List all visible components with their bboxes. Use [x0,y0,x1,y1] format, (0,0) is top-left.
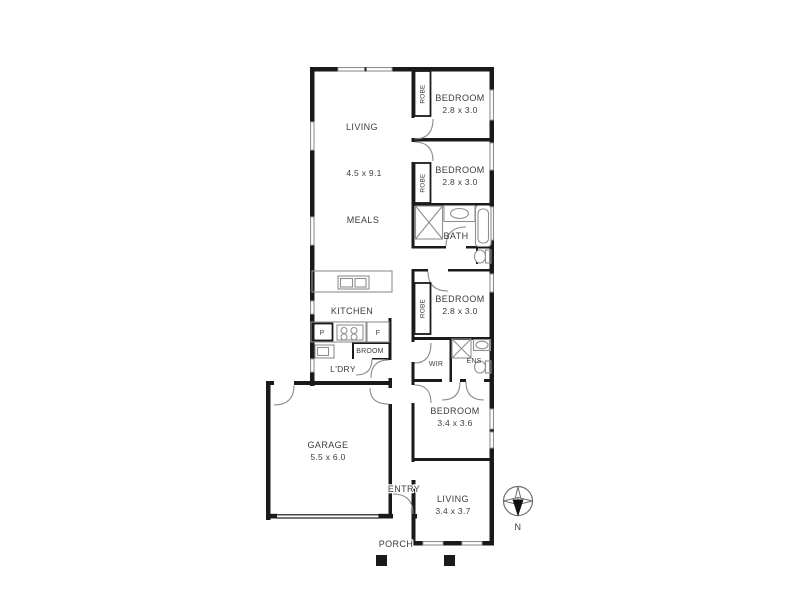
compass-rose: N [504,487,533,533]
laundry-fixtures [315,345,334,358]
room-label-garage: GARAGE [308,440,349,450]
room-label-broom: BROOM [356,348,383,355]
room-dims-bedroom-2: 2.8 x 3.0 [442,177,477,187]
robe-closets [415,71,431,334]
room-labels: LIVING 4.5 x 9.1 MEALS KITCHEN BEDROOM 2… [308,84,485,549]
room-label-porch: PORCH [379,539,414,549]
compass-north-needle [513,500,524,517]
room-dims-garage: 5.5 x 6.0 [310,452,345,462]
compass-north-label: N [515,522,522,532]
room-label-bedroom-2: BEDROOM [435,165,484,175]
room-dims-bedroom-4: 3.4 x 3.6 [437,418,472,428]
room-label-wir: WIR [429,361,443,368]
room-label-meals: MEALS [347,215,380,225]
label-fridge: F [376,330,380,337]
room-label-bath: BATH [444,231,469,241]
room-dims-bedroom-3: 2.8 x 3.0 [442,306,477,316]
room-label-ens: ENS [467,358,482,365]
floor-plan-page: LIVING 4.5 x 9.1 MEALS KITCHEN BEDROOM 2… [0,0,800,600]
label-robe-2: ROBE [420,173,427,193]
ensuite-fixtures [452,339,491,373]
label-robe-3: ROBE [420,298,427,318]
garage-door [277,514,379,518]
room-label-bedroom-3: BEDROOM [435,294,484,304]
label-pantry: P [320,330,325,337]
room-dims-bedroom-1: 2.8 x 3.0 [442,105,477,115]
room-label-living-front: LIVING [437,494,469,504]
room-dims-living-main: 4.5 x 9.1 [346,168,381,178]
room-dims-living-front: 3.4 x 3.7 [435,506,470,516]
room-label-kitchen: KITCHEN [331,306,373,316]
porch-posts [376,555,455,566]
room-label-bedroom-4: BEDROOM [430,406,479,416]
floor-plan-drawing: LIVING 4.5 x 9.1 MEALS KITCHEN BEDROOM 2… [0,0,800,600]
room-label-living-main: LIVING [346,122,378,132]
room-label-entry: ENTRY [388,484,420,494]
label-robe-1: ROBE [420,84,427,104]
room-label-laundry: L'DRY [330,364,356,374]
room-label-bedroom-1: BEDROOM [435,93,484,103]
